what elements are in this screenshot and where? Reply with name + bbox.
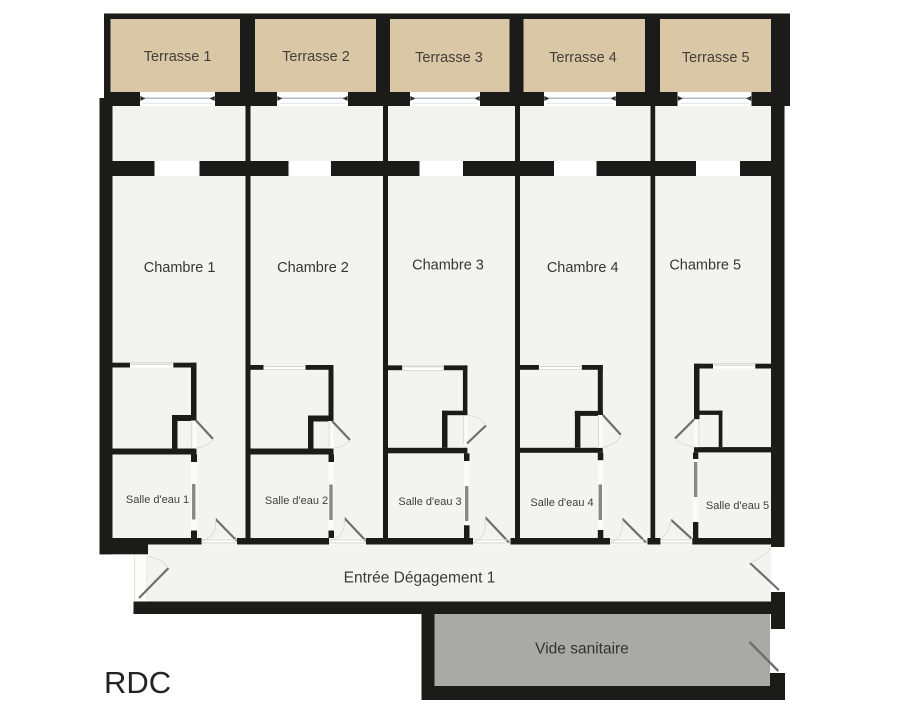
svg-text:Chambre 5: Chambre 5 <box>669 258 741 274</box>
svg-text:Chambre 4: Chambre 4 <box>547 260 619 276</box>
svg-text:Terrasse 5: Terrasse 5 <box>682 50 750 66</box>
svg-text:Salle d'eau 4: Salle d'eau 4 <box>530 497 593 509</box>
svg-text:Salle d'eau 5: Salle d'eau 5 <box>706 500 769 512</box>
svg-text:Vide sanitaire: Vide sanitaire <box>535 641 629 658</box>
svg-text:Chambre 3: Chambre 3 <box>412 258 484 274</box>
svg-text:Terrasse 1: Terrasse 1 <box>144 49 212 65</box>
svg-text:Salle d'eau 2: Salle d'eau 2 <box>265 495 328 507</box>
svg-text:Chambre 1: Chambre 1 <box>144 260 216 276</box>
svg-text:Salle d'eau 1: Salle d'eau 1 <box>126 494 189 506</box>
svg-text:Salle d'eau 3: Salle d'eau 3 <box>398 496 461 508</box>
svg-text:Entrée Dégagement 1: Entrée Dégagement 1 <box>344 570 496 587</box>
svg-text:RDC: RDC <box>104 665 171 700</box>
svg-text:Terrasse 3: Terrasse 3 <box>415 50 483 66</box>
svg-text:Terrasse 4: Terrasse 4 <box>549 50 617 66</box>
svg-text:Chambre 2: Chambre 2 <box>277 260 349 276</box>
svg-text:Terrasse 2: Terrasse 2 <box>282 49 350 65</box>
